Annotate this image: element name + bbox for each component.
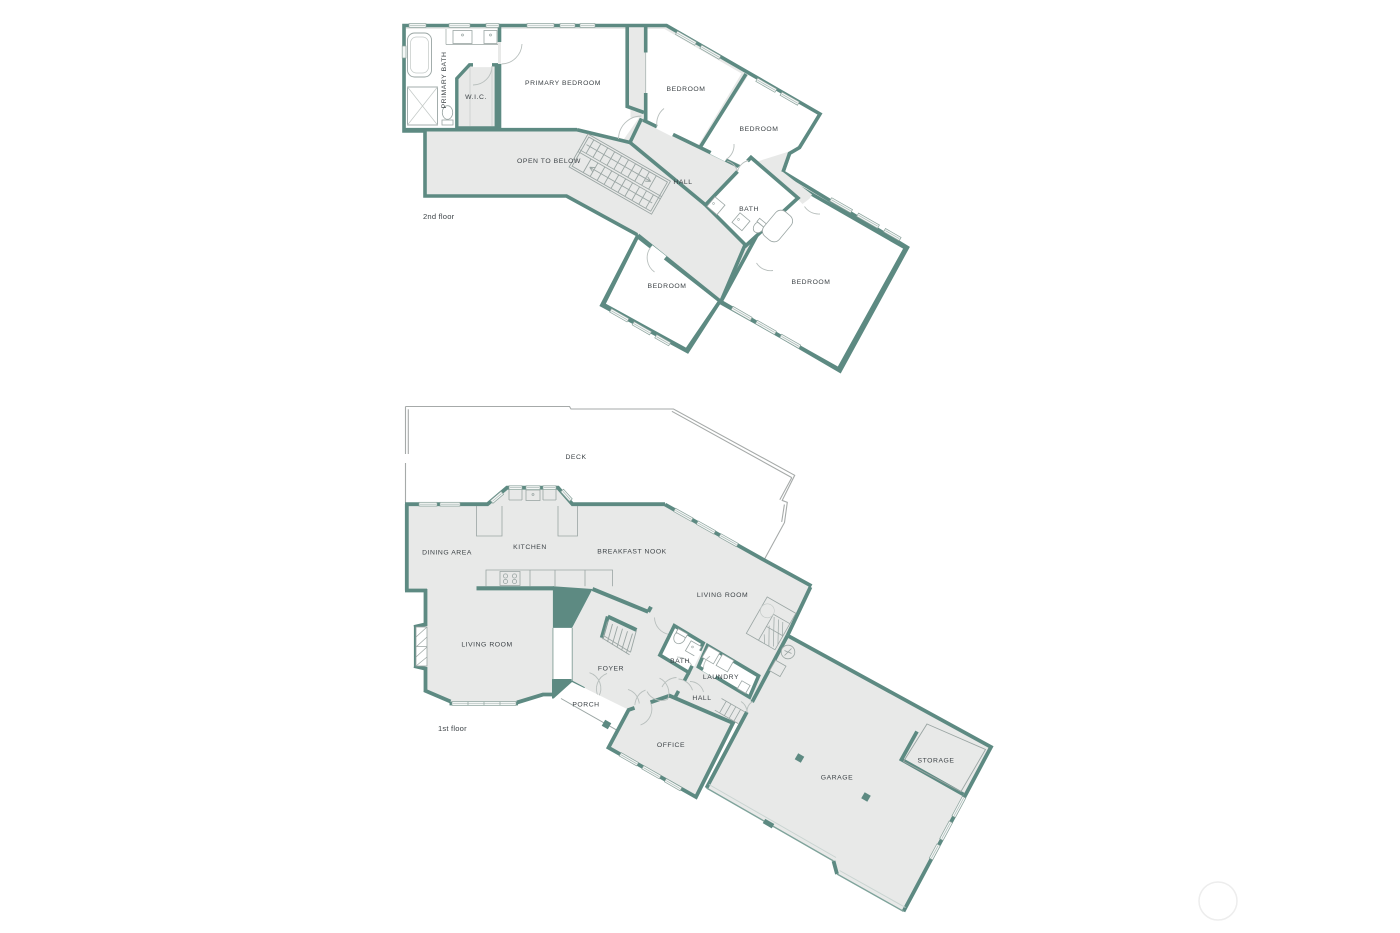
svg-text:BEDROOM: BEDROOM bbox=[667, 86, 706, 93]
svg-text:BEDROOM: BEDROOM bbox=[792, 279, 831, 286]
svg-text:PORCH: PORCH bbox=[572, 702, 599, 709]
svg-text:LAUNDRY: LAUNDRY bbox=[703, 674, 739, 681]
svg-text:PRIMARY BATH: PRIMARY BATH bbox=[441, 52, 448, 109]
svg-text:BREAKFAST NOOK: BREAKFAST NOOK bbox=[597, 549, 667, 556]
svg-text:HALL: HALL bbox=[673, 179, 692, 186]
svg-text:GARAGE: GARAGE bbox=[821, 775, 853, 782]
svg-text:W.I.C.: W.I.C. bbox=[465, 94, 487, 101]
svg-text:BEDROOM: BEDROOM bbox=[648, 283, 687, 290]
svg-text:OFFICE: OFFICE bbox=[657, 742, 685, 749]
svg-text:FOYER: FOYER bbox=[598, 666, 624, 673]
svg-text:BATH: BATH bbox=[739, 206, 759, 213]
svg-text:KITCHEN: KITCHEN bbox=[513, 544, 547, 551]
svg-text:LIVING ROOM: LIVING ROOM bbox=[461, 642, 512, 649]
svg-text:DECK: DECK bbox=[565, 454, 586, 461]
svg-text:LIVING ROOM: LIVING ROOM bbox=[697, 592, 748, 599]
svg-text:BATH: BATH bbox=[670, 658, 690, 665]
svg-text:OPEN TO BELOW: OPEN TO BELOW bbox=[517, 158, 581, 165]
svg-text:STORAGE: STORAGE bbox=[918, 758, 955, 765]
svg-text:DINING AREA: DINING AREA bbox=[422, 550, 472, 557]
svg-text:BEDROOM: BEDROOM bbox=[740, 126, 779, 133]
svg-text:PRIMARY BEDROOM: PRIMARY BEDROOM bbox=[525, 80, 601, 87]
svg-text:HALL: HALL bbox=[692, 695, 711, 702]
svg-text:1st floor: 1st floor bbox=[438, 724, 467, 733]
svg-text:2nd floor: 2nd floor bbox=[423, 212, 455, 221]
